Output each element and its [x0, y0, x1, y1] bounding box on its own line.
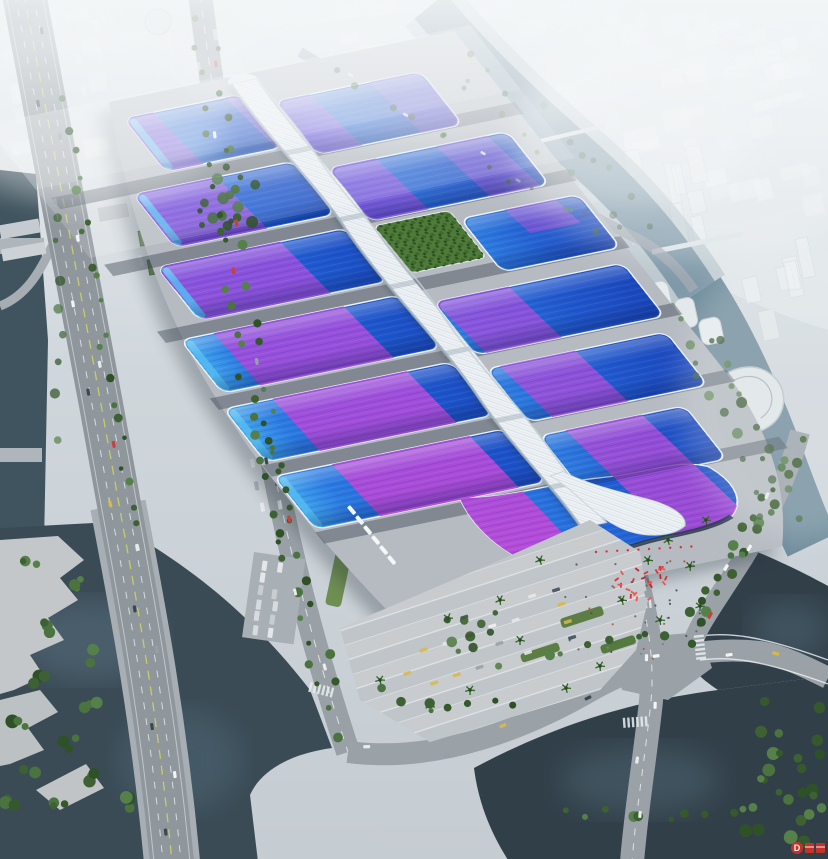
tree [797, 788, 807, 798]
tree [282, 486, 289, 493]
red-flag-dot [595, 551, 597, 553]
tree [584, 641, 591, 648]
pedestrian [669, 560, 671, 562]
tree [69, 579, 80, 590]
tree [22, 723, 29, 730]
tree [582, 814, 588, 820]
tree [221, 286, 229, 294]
tree [53, 304, 63, 314]
pedestrian [564, 596, 566, 598]
tree [307, 601, 313, 607]
tree [762, 764, 775, 777]
tree [199, 222, 205, 228]
tree [238, 340, 245, 347]
tree [114, 414, 123, 423]
tree [714, 574, 722, 582]
pedestrian [683, 560, 685, 562]
tree [44, 627, 55, 638]
tree [325, 649, 335, 659]
tree [59, 331, 67, 339]
tree [688, 640, 696, 648]
red-flag-dot [637, 548, 639, 550]
red-flag-dot [690, 545, 692, 547]
tree [444, 616, 451, 623]
tree [444, 704, 452, 712]
pedestrian [611, 585, 613, 587]
tree [19, 765, 28, 774]
tree [261, 420, 267, 426]
tree [265, 437, 273, 445]
tree [814, 702, 825, 713]
pedestrian [663, 623, 665, 625]
car [638, 811, 642, 818]
tree [545, 650, 555, 660]
tree [89, 645, 99, 655]
tree [111, 402, 117, 408]
tree [783, 794, 794, 805]
pedestrian [646, 578, 648, 580]
tree [85, 219, 91, 225]
tree [234, 331, 241, 338]
tree [14, 717, 23, 726]
tree [752, 824, 764, 836]
tree [425, 698, 435, 708]
tree [760, 697, 770, 707]
tree [89, 768, 100, 779]
tree [701, 811, 709, 819]
tree [775, 729, 784, 738]
tree [238, 240, 248, 250]
tree [55, 276, 65, 286]
tree [740, 806, 747, 813]
tree [97, 344, 103, 350]
pedestrian [669, 599, 671, 601]
tree [776, 789, 783, 796]
tree [120, 791, 133, 804]
tree [738, 522, 748, 532]
watermark: D [791, 842, 825, 854]
pedestrian [654, 604, 656, 606]
tree [685, 607, 695, 617]
tree [314, 681, 319, 686]
pedestrian [590, 612, 592, 614]
tree [680, 809, 689, 818]
tree [278, 462, 284, 468]
tree [749, 803, 758, 812]
red-flag-dot [627, 549, 629, 551]
tree [757, 775, 764, 782]
tree [793, 754, 802, 763]
tree [642, 631, 648, 637]
tree [563, 807, 569, 813]
red-flag-dot [669, 547, 671, 549]
tree [61, 800, 69, 808]
tree [456, 649, 461, 654]
tree [271, 409, 276, 414]
tree [377, 684, 386, 693]
tree [326, 705, 332, 711]
tree [79, 702, 90, 713]
pedestrian [588, 607, 590, 609]
tree [660, 631, 669, 640]
tree [487, 629, 494, 636]
pedestrian [675, 589, 677, 591]
tree [126, 478, 134, 486]
tree [28, 678, 39, 689]
pedestrian [631, 581, 633, 583]
pedestrian [662, 643, 664, 645]
pedestrian [685, 635, 687, 637]
tree [605, 636, 613, 644]
tree [477, 620, 486, 629]
pedestrian [619, 596, 621, 598]
tree [460, 616, 469, 625]
pedestrian [585, 596, 587, 598]
tree [246, 216, 258, 228]
tree [50, 388, 60, 398]
tree [251, 395, 259, 403]
tree [250, 430, 260, 440]
pedestrian [669, 603, 671, 605]
tree [79, 229, 85, 235]
tree [797, 764, 807, 774]
pedestrian [692, 564, 694, 566]
tree [714, 589, 721, 596]
red-flag-dot [605, 550, 607, 552]
tree [331, 677, 339, 685]
pedestrian [666, 562, 668, 564]
tree [306, 641, 311, 646]
pedestrian [693, 561, 695, 563]
aerial-render-stage: Riverside exhibition and convention cent… [0, 0, 828, 859]
pedestrian [643, 648, 645, 650]
pedestrian [644, 621, 646, 623]
aerial-render: Riverside exhibition and convention cent… [0, 0, 828, 859]
car [443, 754, 450, 757]
tree [88, 264, 96, 272]
tree [29, 767, 41, 779]
watermark-glyph [816, 843, 825, 853]
canal-bridge [0, 448, 42, 462]
tree [20, 558, 26, 564]
red-flag-dot [658, 547, 660, 549]
tree [255, 338, 263, 346]
tree [558, 651, 563, 656]
tree [54, 436, 62, 444]
tree [93, 272, 99, 278]
tree [227, 302, 235, 310]
tree [256, 457, 264, 465]
tree [253, 319, 261, 327]
tree [65, 744, 74, 753]
tree [270, 450, 275, 455]
tree [99, 298, 104, 303]
pedestrian [612, 623, 614, 625]
tree [133, 520, 139, 526]
tree [396, 697, 406, 707]
tree [697, 618, 706, 627]
tree [261, 387, 266, 392]
tree [223, 221, 233, 231]
tree [493, 610, 499, 616]
pedestrian [614, 563, 616, 565]
tree [287, 505, 293, 511]
pedestrian [668, 617, 670, 619]
pedestrian [634, 615, 636, 617]
tree [207, 212, 218, 223]
watermark-glyph [805, 843, 814, 853]
tree [53, 213, 62, 222]
tree [276, 529, 285, 538]
red-flag-dot [648, 548, 650, 550]
tree [235, 374, 242, 381]
tree [429, 708, 434, 713]
tree [275, 468, 281, 474]
tree [698, 597, 706, 605]
tree [636, 634, 642, 640]
tree [464, 700, 471, 707]
red-flag-dot [680, 546, 682, 548]
tree [804, 809, 815, 820]
tree [297, 615, 303, 621]
red-flag-dot [616, 550, 618, 552]
tree [602, 806, 609, 813]
tree [817, 803, 827, 813]
tree [509, 702, 516, 709]
car [363, 745, 370, 748]
tree [810, 792, 818, 800]
tree [495, 663, 502, 670]
tree [270, 445, 275, 450]
tree [40, 618, 48, 626]
tree [333, 733, 343, 743]
tree [815, 749, 825, 759]
tree [33, 561, 40, 568]
tree [728, 540, 739, 551]
tree [106, 374, 114, 382]
pedestrian [645, 585, 647, 587]
car [645, 654, 648, 661]
tree [217, 212, 223, 218]
pedestrian [575, 563, 577, 565]
tree [728, 552, 735, 559]
tree [293, 552, 300, 559]
tree [492, 698, 498, 704]
pedestrian [640, 653, 642, 655]
pedestrian [577, 648, 579, 650]
tree [262, 473, 269, 480]
tree [278, 555, 285, 562]
car [653, 702, 656, 709]
tree [131, 505, 137, 511]
watermark-logo: D [791, 842, 803, 854]
tree [465, 631, 475, 641]
tree [53, 238, 59, 244]
tree [755, 726, 767, 738]
tree [9, 799, 21, 811]
pedestrian [610, 651, 612, 653]
tree [678, 316, 684, 322]
tree [122, 436, 127, 441]
pedestrian [607, 647, 609, 649]
tree [242, 282, 251, 291]
tree [739, 824, 752, 837]
pedestrian [699, 612, 701, 614]
tree [727, 569, 737, 579]
tree [739, 552, 745, 558]
tree [276, 539, 281, 544]
tree [223, 237, 228, 242]
tree [72, 734, 80, 742]
tree [305, 660, 313, 668]
tree [811, 735, 823, 747]
tree [50, 802, 57, 809]
tree [91, 697, 103, 709]
tree [468, 643, 477, 652]
tree [250, 413, 258, 421]
tree [668, 816, 674, 822]
tree [55, 358, 62, 365]
tree [39, 671, 50, 682]
tree [270, 511, 278, 519]
tree [701, 586, 709, 594]
tree [776, 750, 783, 757]
tree [86, 658, 96, 668]
tree [447, 637, 458, 648]
tree [103, 333, 108, 338]
tree [217, 228, 224, 235]
pedestrian [695, 630, 697, 632]
tree [119, 466, 124, 471]
tree [730, 809, 738, 817]
tree [302, 576, 311, 585]
